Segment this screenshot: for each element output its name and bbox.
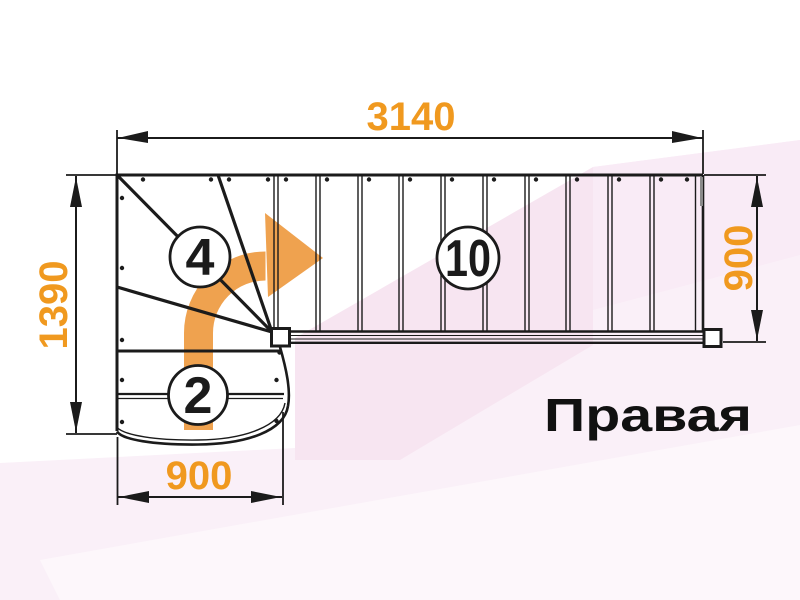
dimension-top-label: 3140	[367, 95, 456, 139]
screw-dot	[367, 177, 371, 181]
screw-dot	[120, 378, 124, 382]
screw-dot	[575, 177, 579, 181]
screw-dot	[284, 177, 288, 181]
stair-plan-drawing: 4 10 2 3140 1390 900 900	[0, 0, 800, 600]
newel-post-left	[272, 329, 290, 347]
screw-dot	[617, 177, 621, 181]
background-facets	[0, 140, 800, 600]
screw-dot	[274, 419, 278, 423]
screw-dot	[120, 196, 124, 200]
screw-dot	[534, 177, 538, 181]
dimension-arrowhead-down	[70, 402, 82, 432]
screw-dot	[450, 177, 454, 181]
screw-dot	[120, 420, 124, 424]
straight-count-label: 10	[445, 230, 491, 288]
screw-dot	[277, 350, 281, 354]
winder-count-label: 4	[186, 229, 215, 287]
screw-dot	[209, 177, 213, 181]
screw-dot	[227, 177, 231, 181]
newel-post-right	[704, 330, 721, 347]
stair-plan-canvas: 4 10 2 3140 1390 900 900	[0, 0, 800, 600]
dimension-bottom-label: 900	[166, 454, 233, 498]
screw-dot	[141, 177, 145, 181]
screw-dot	[685, 177, 689, 181]
screw-dot	[120, 338, 124, 342]
screw-dot	[266, 177, 270, 181]
dimension-arrowhead-left	[118, 131, 148, 143]
dimension-left-label: 1390	[32, 261, 76, 350]
screw-dot	[274, 378, 278, 382]
dimension-arrowhead-right	[672, 131, 702, 143]
page-title: Правая	[544, 389, 752, 441]
screw-dot	[408, 177, 412, 181]
screw-dot	[120, 266, 124, 270]
bottom-count-label: 2	[184, 367, 213, 425]
dimension-right-label: 900	[717, 225, 761, 292]
bottom-flight-right-edge	[280, 347, 289, 406]
screw-dot	[659, 177, 663, 181]
dimension-arrowhead-up	[70, 177, 82, 207]
screw-dot	[492, 177, 496, 181]
screw-dot	[325, 177, 329, 181]
